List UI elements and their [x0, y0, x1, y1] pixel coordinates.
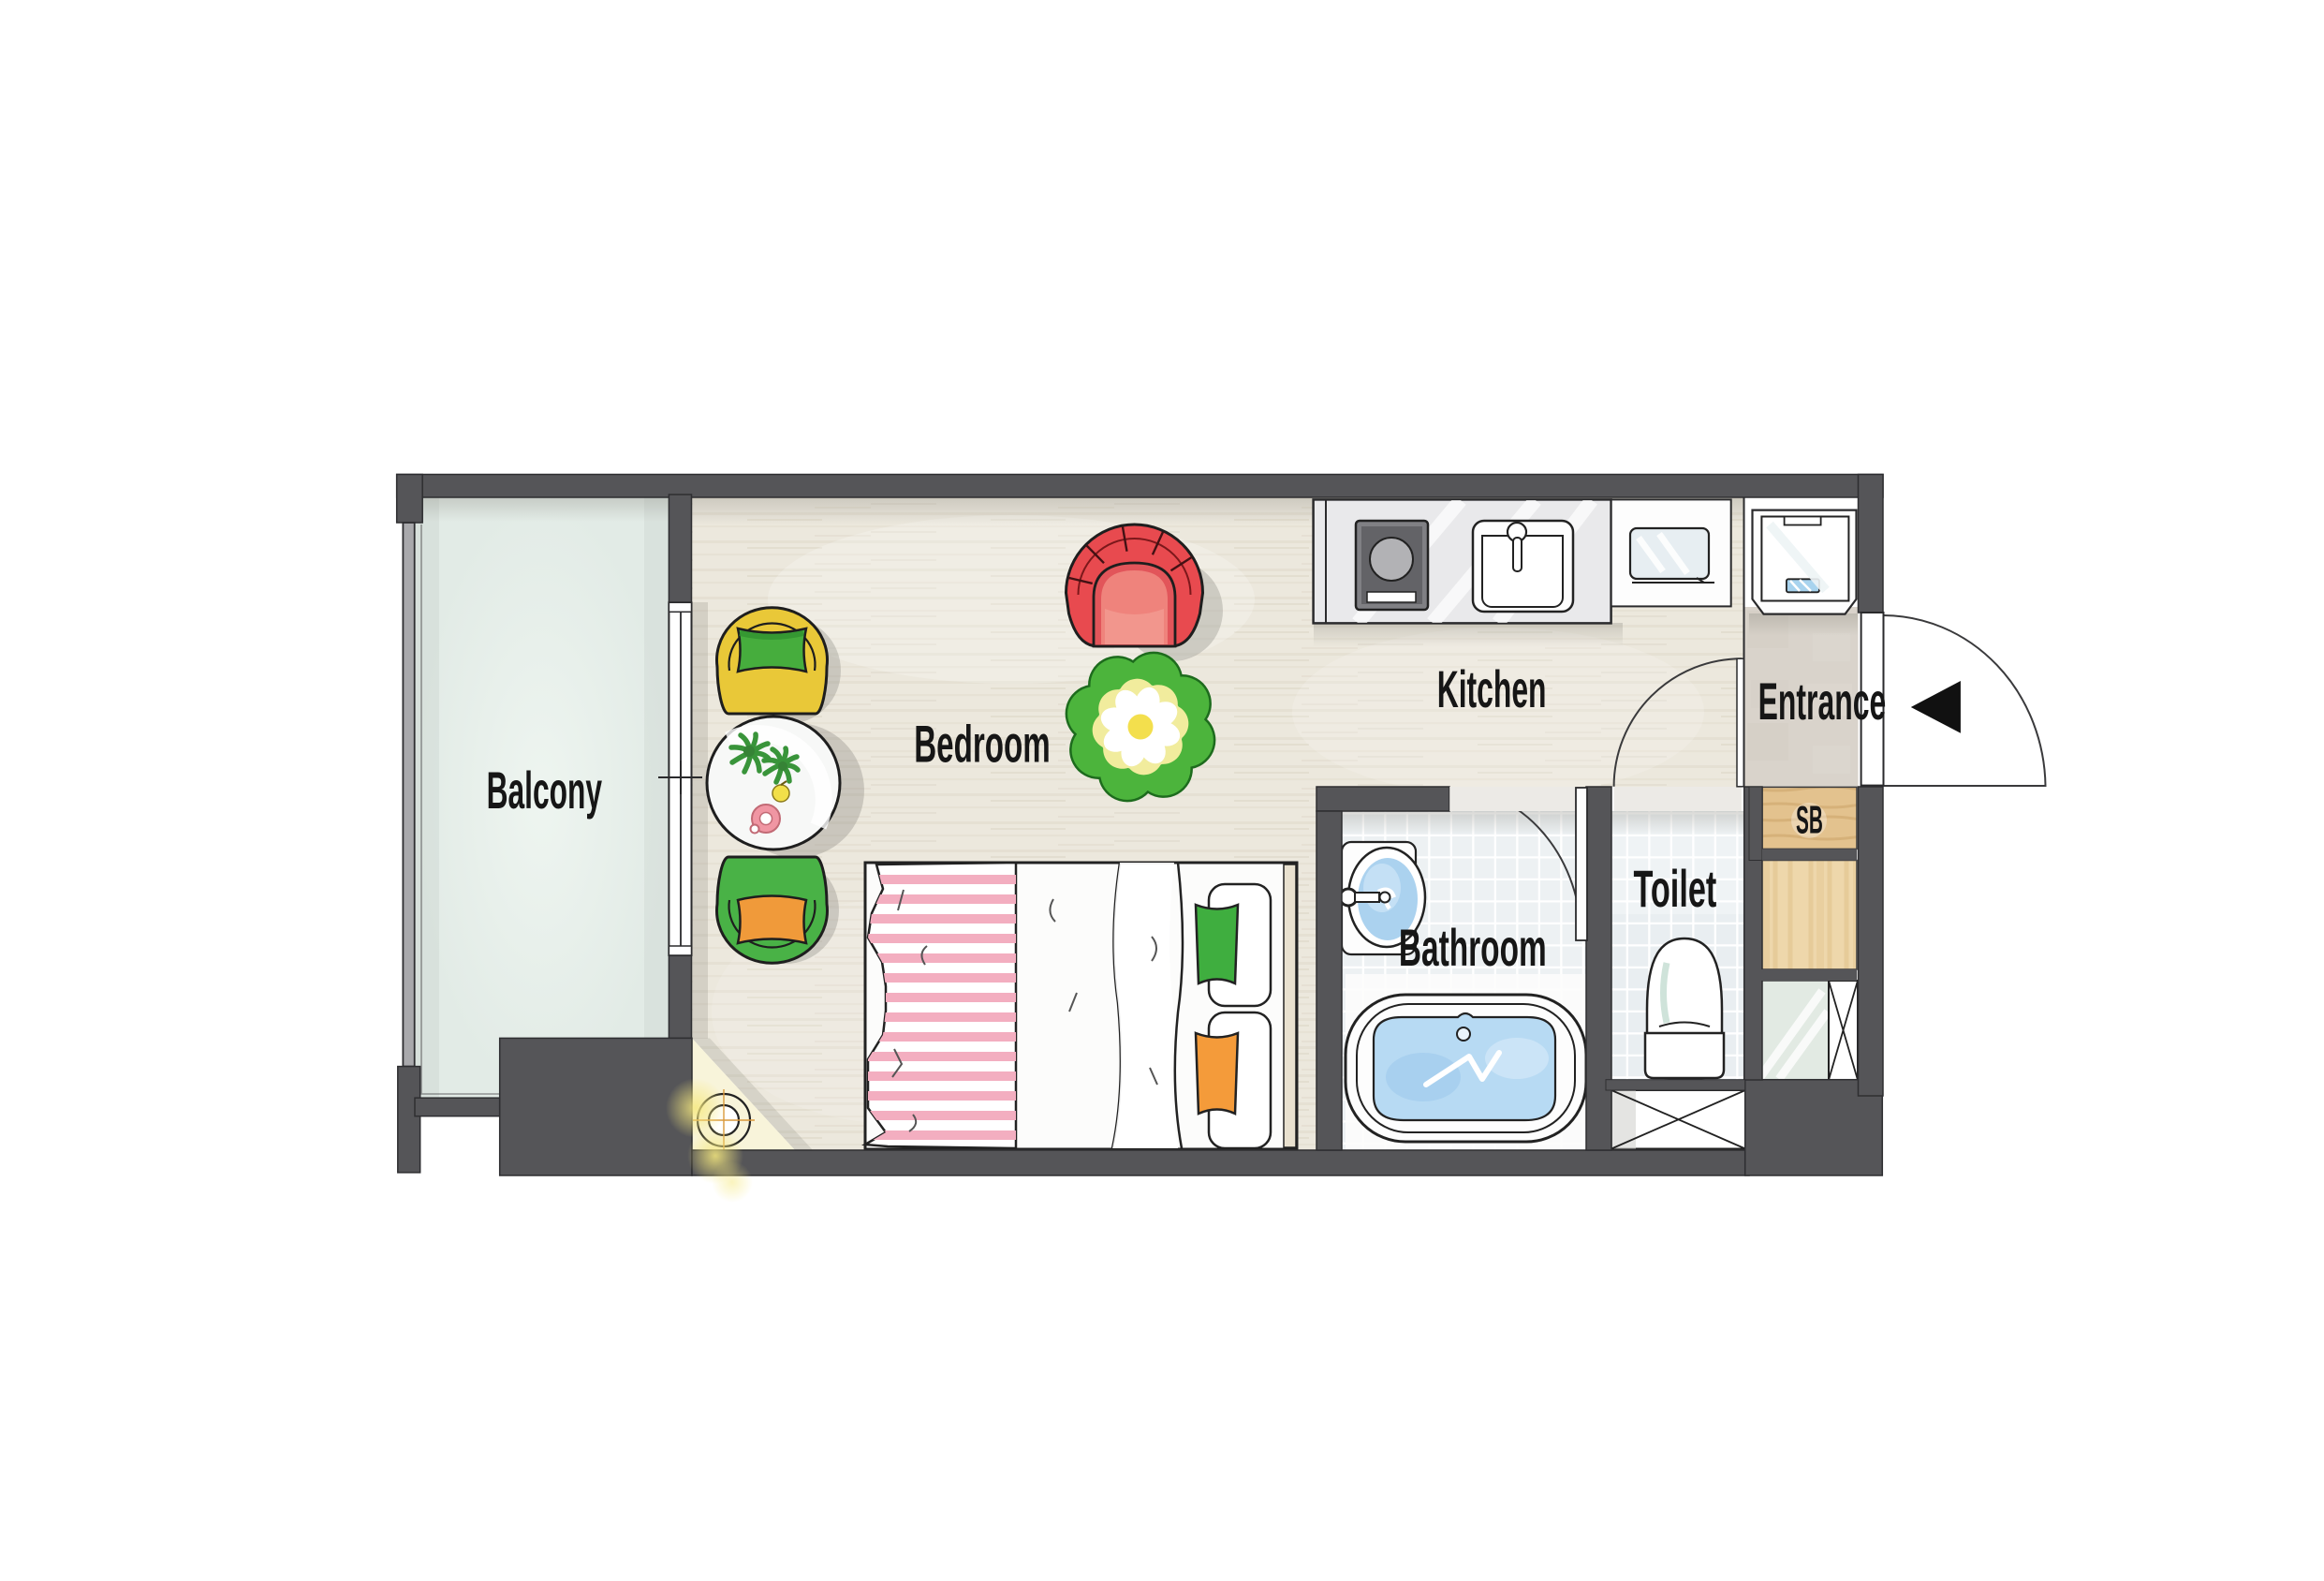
- svg-text:Entrance: Entrance: [1758, 672, 1887, 731]
- svg-text:Toilet: Toilet: [1634, 859, 1717, 918]
- svg-text:Balcony: Balcony: [487, 761, 603, 820]
- svg-text:Kitchen: Kitchen: [1437, 659, 1547, 718]
- svg-text:Bathroom: Bathroom: [1399, 918, 1547, 977]
- svg-text:SB: SB: [1796, 798, 1823, 842]
- svg-text:Bedroom: Bedroom: [914, 715, 1050, 774]
